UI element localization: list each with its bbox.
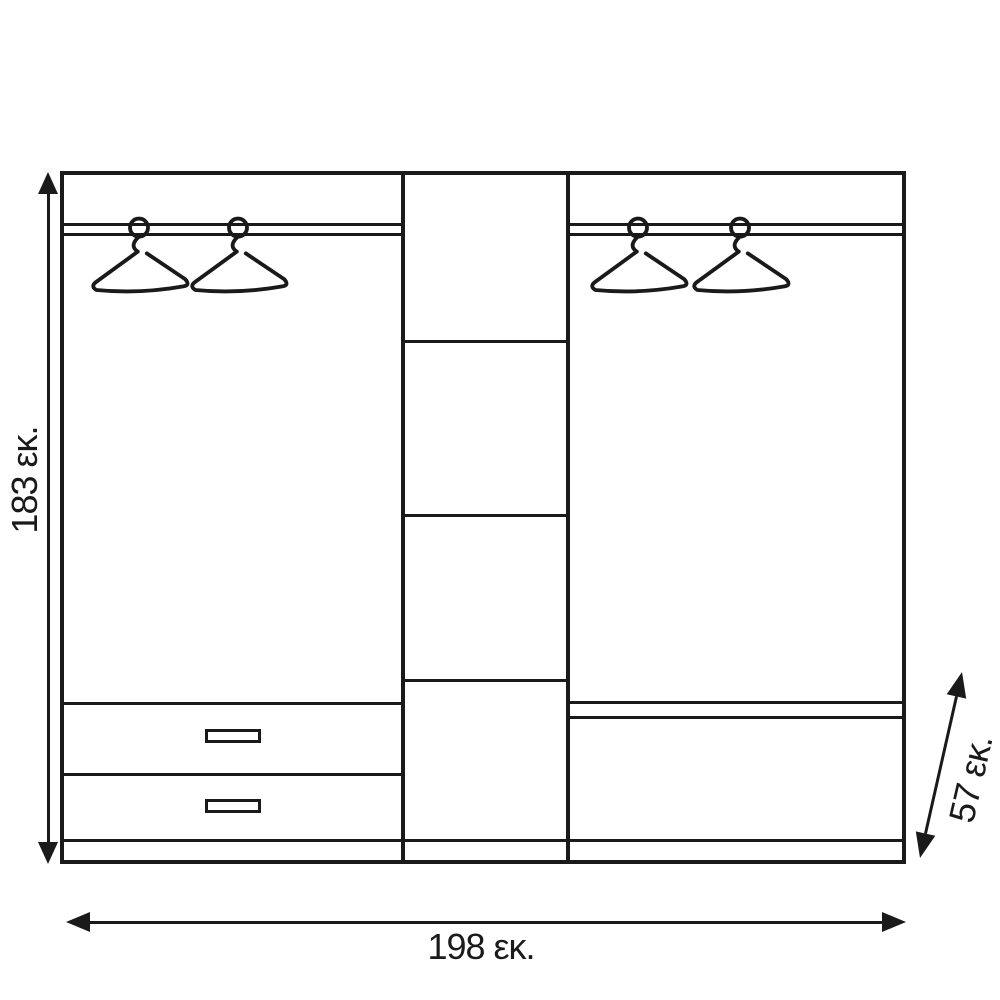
middle-shelf-line-3 <box>405 679 566 682</box>
right-shelf-line-upper <box>570 701 902 704</box>
height-dimension-arrow-down-icon <box>38 842 58 864</box>
wardrobe-technical-diagram: 183 εκ. 198 εκ. 57 εκ. <box>0 0 1000 1000</box>
height-dimension-arrow-up-icon <box>38 172 58 194</box>
drawer-handle-1 <box>205 729 261 743</box>
middle-shelf-line-1 <box>405 340 566 343</box>
hanger-icon <box>680 216 800 304</box>
height-dimension-label: 183 εκ. <box>7 425 43 535</box>
vertical-divider-left <box>401 171 405 864</box>
right-shelf-line-lower <box>570 716 902 719</box>
height-dimension-line <box>47 192 50 844</box>
vertical-divider-right <box>566 171 570 864</box>
plinth-line <box>64 839 902 842</box>
width-dimension-label: 198 εκ. <box>381 929 581 965</box>
width-dimension-arrow-right-icon <box>882 912 906 932</box>
middle-shelf-line-2 <box>405 514 566 517</box>
hanger-icon <box>178 216 298 304</box>
width-dimension-line <box>90 921 882 924</box>
drawer-divider-top <box>64 702 401 705</box>
drawer-divider-middle <box>64 773 401 776</box>
drawer-handle-2 <box>205 799 261 813</box>
width-dimension-arrow-left-icon <box>66 912 90 932</box>
